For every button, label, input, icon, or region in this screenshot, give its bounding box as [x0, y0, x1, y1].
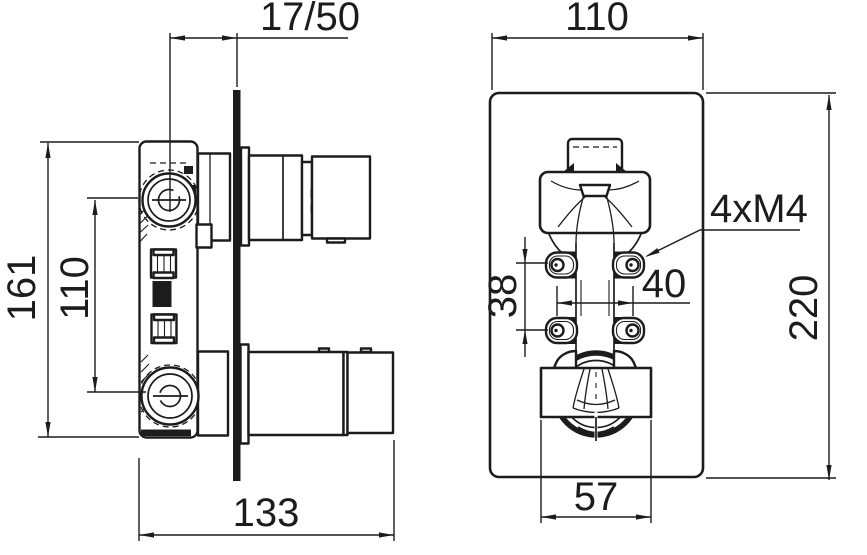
- dimension-plate-height: 220: [706, 93, 836, 480]
- dimension-total-depth: 133: [139, 440, 394, 541]
- side-view: [139, 90, 393, 481]
- technical-drawing: 17/50 161 110 133 110: [0, 0, 867, 555]
- upper-handle: [241, 148, 370, 246]
- dimensions: 17/50 161 110 133 110: [0, 0, 836, 541]
- body-detail: [184, 166, 193, 174]
- mounting-ear: [613, 318, 644, 343]
- dim-label-133: 133: [233, 491, 300, 535]
- mounting-ear: [546, 318, 577, 343]
- mounting-ear: [613, 253, 644, 278]
- dim-label-17-50: 17/50: [260, 0, 360, 39]
- lower-handle: [241, 345, 394, 444]
- lower-flange: [198, 352, 228, 436]
- dim-label-40: 40: [642, 262, 687, 306]
- upper-knob: [312, 157, 370, 239]
- dimension-port-spacing: 110: [53, 198, 146, 392]
- dimension-plate-width: 110: [492, 0, 703, 90]
- top-port: [143, 174, 196, 227]
- base-detail: [141, 430, 191, 437]
- dim-label-4xm4: 4xM4: [710, 187, 808, 231]
- dim-label-110-front: 110: [565, 0, 629, 39]
- upper-flange: [197, 154, 231, 248]
- mounting-ear: [546, 253, 577, 278]
- dim-label-57: 57: [574, 475, 619, 519]
- dim-label-220: 220: [782, 275, 826, 342]
- bottom-port: [142, 368, 199, 425]
- drawing-canvas: 17/50 161 110 133 110: [0, 0, 867, 555]
- dim-label-110-side: 110: [53, 256, 97, 320]
- dim-label-38: 38: [481, 274, 525, 319]
- lower-knob: [348, 353, 394, 434]
- dim-label-161: 161: [0, 255, 44, 322]
